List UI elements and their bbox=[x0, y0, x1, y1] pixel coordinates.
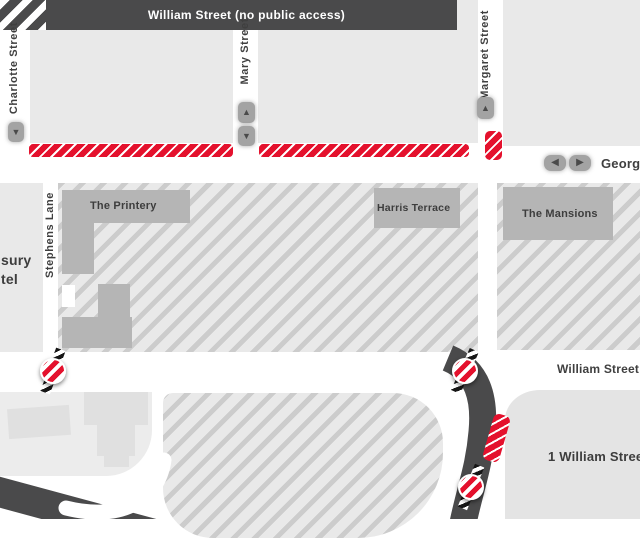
road-closure-hatch-icon bbox=[0, 0, 46, 30]
road-closed-icon-east bbox=[452, 358, 478, 384]
william-street-label: William Street bbox=[557, 362, 639, 376]
footpath-closure-margaret bbox=[485, 131, 502, 160]
charlotte-street-label: Charlotte Street bbox=[8, 22, 20, 114]
william-street-closed-road: William Street (no public access) bbox=[0, 0, 457, 30]
footpath-closure-mary-margaret bbox=[259, 144, 469, 157]
footpath-closure-charlotte-mary bbox=[29, 144, 233, 157]
george-street-arrow-right-icon: ▶ bbox=[569, 155, 591, 171]
mary-street-arrow-up-icon: ▲ bbox=[238, 102, 255, 123]
george-street-arrow-left-icon: ◀ bbox=[544, 155, 566, 171]
road-closed-icon-west bbox=[40, 358, 66, 384]
margaret-street-label: Margaret Street bbox=[479, 10, 491, 100]
margaret-street-arrow-up-icon: ▲ bbox=[477, 97, 494, 119]
mary-street-arrow-down-icon: ▼ bbox=[238, 126, 255, 146]
road-closed-icon-south bbox=[458, 474, 484, 500]
charlotte-street-arrow-down-icon: ▼ bbox=[8, 122, 24, 142]
open-road-sweep bbox=[66, 460, 164, 512]
road-curves bbox=[0, 0, 640, 519]
mary-street-label: Mary Street bbox=[239, 18, 251, 85]
stephens-lane-label: Stephens Lane bbox=[44, 192, 56, 278]
george-street-label: George bbox=[601, 156, 640, 171]
